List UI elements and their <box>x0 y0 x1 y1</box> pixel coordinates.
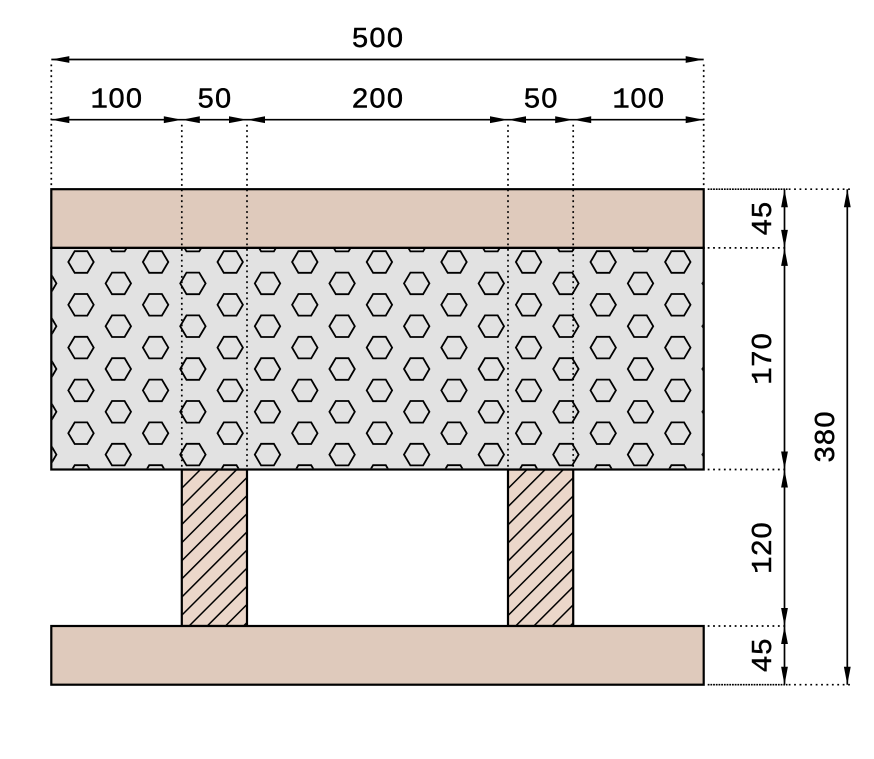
svg-text:45: 45 <box>747 638 780 673</box>
svg-text:50: 50 <box>523 83 558 116</box>
svg-text:45: 45 <box>747 201 780 236</box>
svg-text:50: 50 <box>197 83 232 116</box>
